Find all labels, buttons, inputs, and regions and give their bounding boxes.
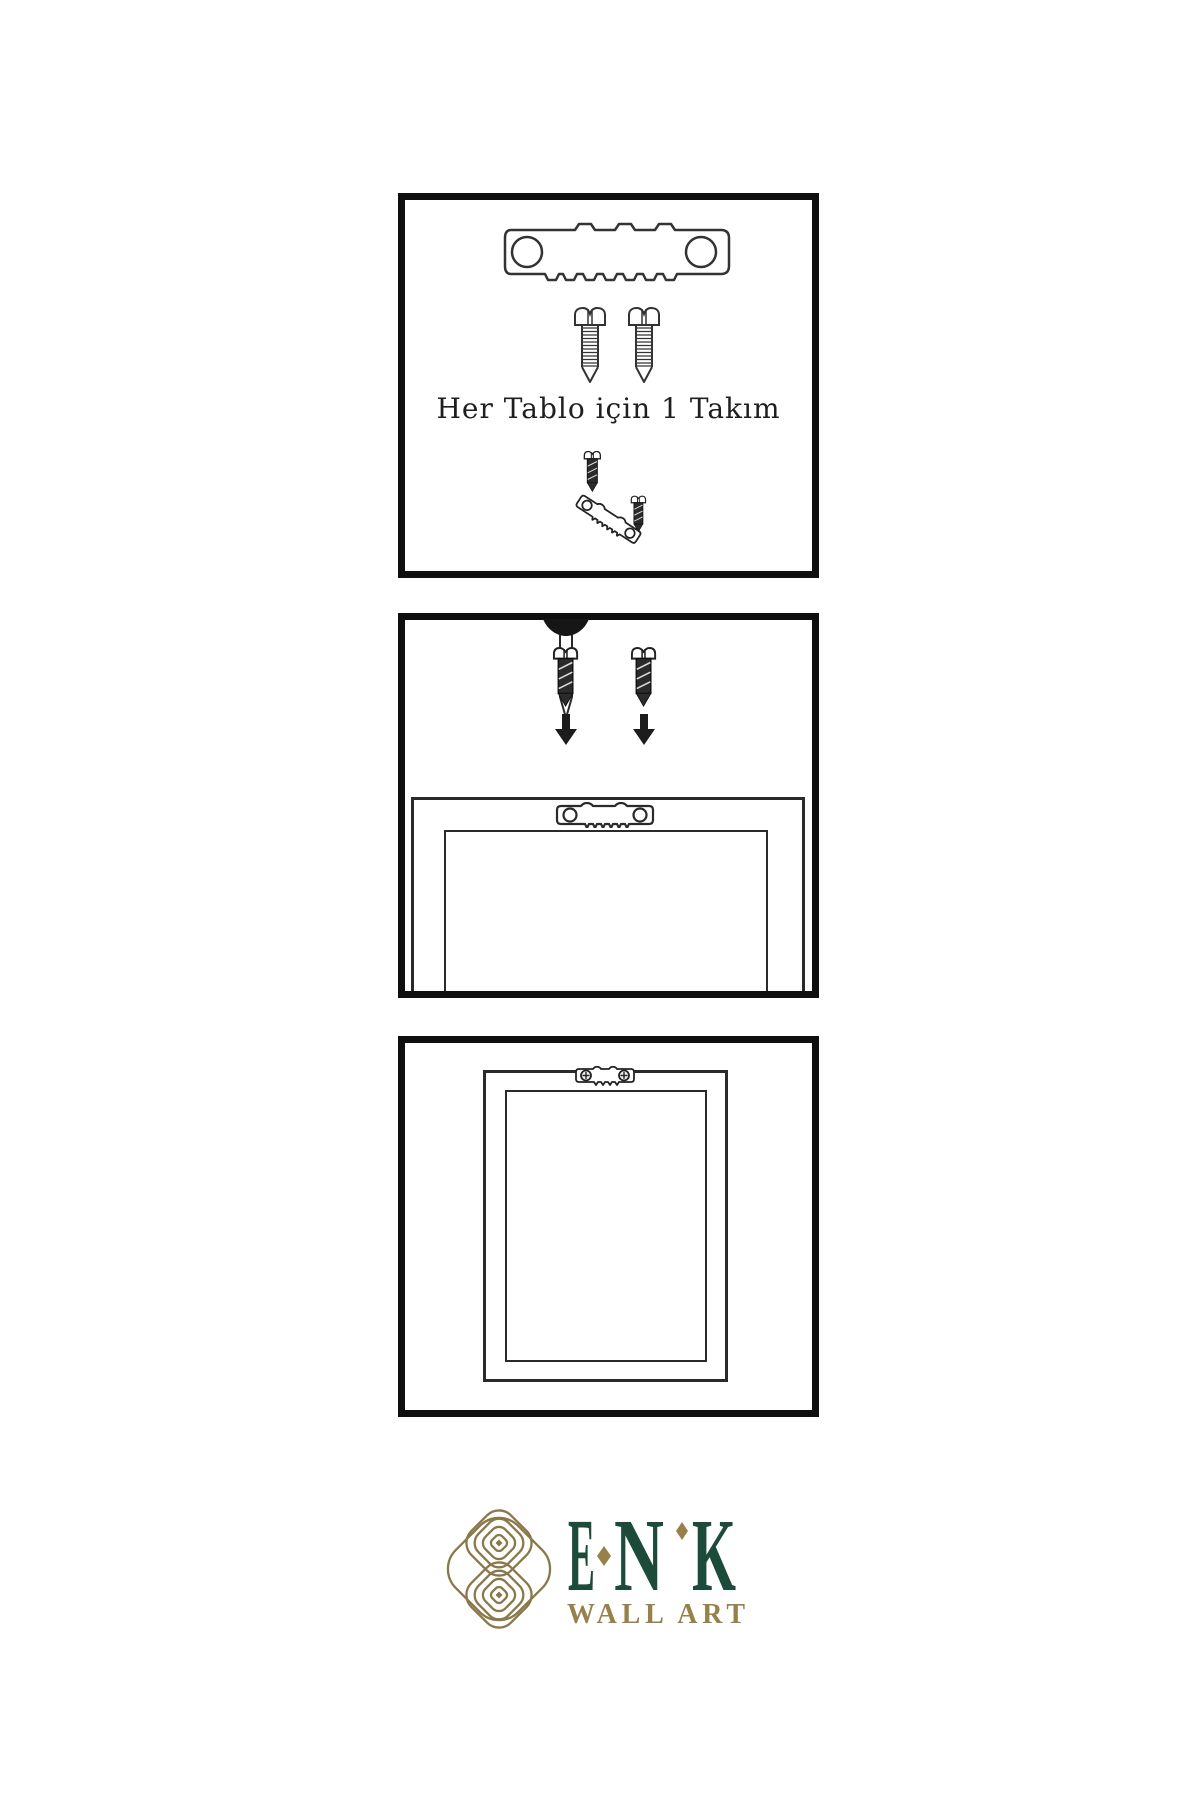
down-arrow-icon	[554, 714, 578, 746]
screw-icon	[572, 305, 608, 385]
step1-panel: Her Tablo için 1 Takım	[398, 193, 819, 578]
sawtooth-hanger-icon	[553, 802, 657, 828]
step3-panel	[398, 1036, 819, 1417]
knot-dot-icon	[495, 1591, 502, 1598]
instruction-sheet: Her Tablo için 1 Takım	[0, 0, 1200, 1800]
screw-icon	[552, 646, 581, 708]
brand-letter-e: E	[568, 1498, 595, 1613]
brand-wordmark: E N K WALL ART	[558, 1492, 758, 1632]
brand-diamond-icon	[597, 1546, 611, 1566]
mounted-sawtooth-hanger-icon	[573, 1066, 637, 1086]
brand-letter-n: N	[614, 1498, 664, 1613]
screw-icon	[626, 305, 662, 385]
brand-knot-icon	[437, 1498, 562, 1640]
screw-icon	[630, 495, 648, 533]
step1-caption: Her Tablo için 1 Takım	[405, 392, 812, 425]
frame-back-inner	[444, 830, 768, 991]
step2-panel	[398, 613, 819, 998]
down-arrow-icon	[632, 714, 656, 746]
sawtooth-hanger-icon	[497, 222, 731, 282]
screw-icon	[630, 646, 659, 708]
brand-letter-k: K	[692, 1498, 736, 1613]
hanging-frame-inner	[505, 1090, 707, 1362]
knot-dot-icon	[495, 1539, 502, 1546]
brand-diamond-icon	[676, 1522, 688, 1540]
screw-icon	[583, 450, 603, 493]
